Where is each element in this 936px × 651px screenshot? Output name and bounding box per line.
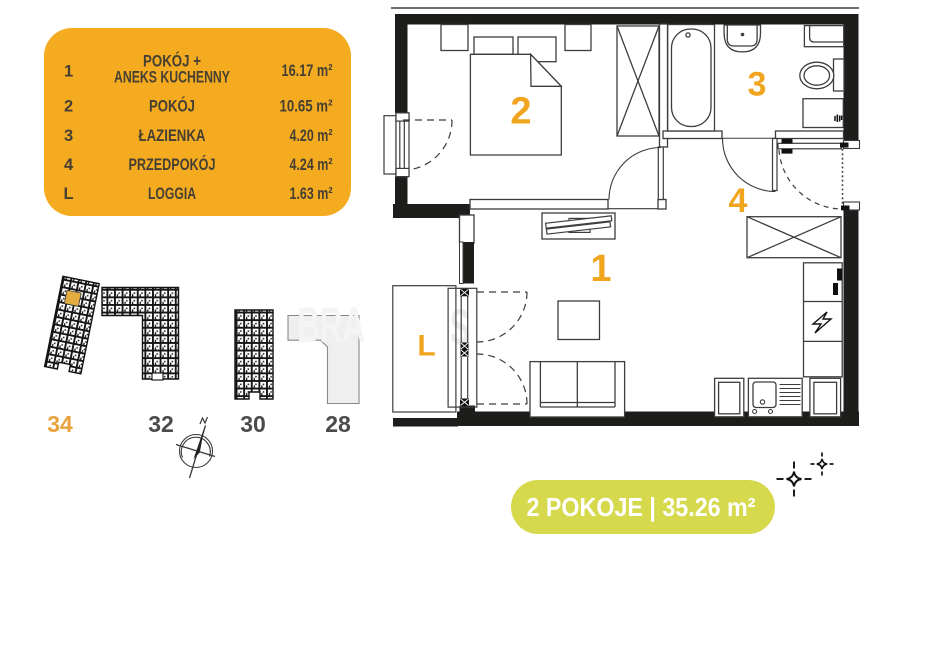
svg-text:4.24 m²: 4.24 m² [290,156,333,174]
svg-text:1: 1 [590,248,611,290]
svg-text:ANEKS KUCHENNY: ANEKS KUCHENNY [114,69,230,87]
svg-text:10.65 m²: 10.65 m² [280,98,333,116]
svg-text:2 POKOJE | 35.26 m²: 2 POKOJE | 35.26 m² [527,492,756,522]
svg-text:LOGGIA: LOGGIA [148,185,196,203]
svg-text:16.17 m²: 16.17 m² [282,62,333,80]
svg-text:30: 30 [240,411,266,437]
svg-text:ŁAZIENKA: ŁAZIENKA [139,127,206,145]
svg-text:2: 2 [510,91,531,133]
svg-text:34: 34 [47,411,73,437]
svg-text:PRZEDPOKÓJ: PRZEDPOKÓJ [129,155,216,174]
svg-text:L: L [64,185,74,203]
svg-text:L: L [417,330,435,363]
svg-text:4.20 m²: 4.20 m² [290,127,333,145]
svg-text:BRA: BRA [297,297,365,353]
svg-text:28: 28 [325,411,351,437]
svg-text:3: 3 [748,66,767,104]
svg-text:1.63 m²: 1.63 m² [290,185,333,203]
svg-text:4: 4 [729,182,748,220]
svg-text:4: 4 [64,156,74,174]
svg-text:3: 3 [64,127,73,145]
svg-text:POKÓJ: POKÓJ [149,97,195,116]
svg-text:32: 32 [148,411,174,437]
svg-text:1: 1 [64,63,73,81]
svg-text:2: 2 [64,98,73,116]
